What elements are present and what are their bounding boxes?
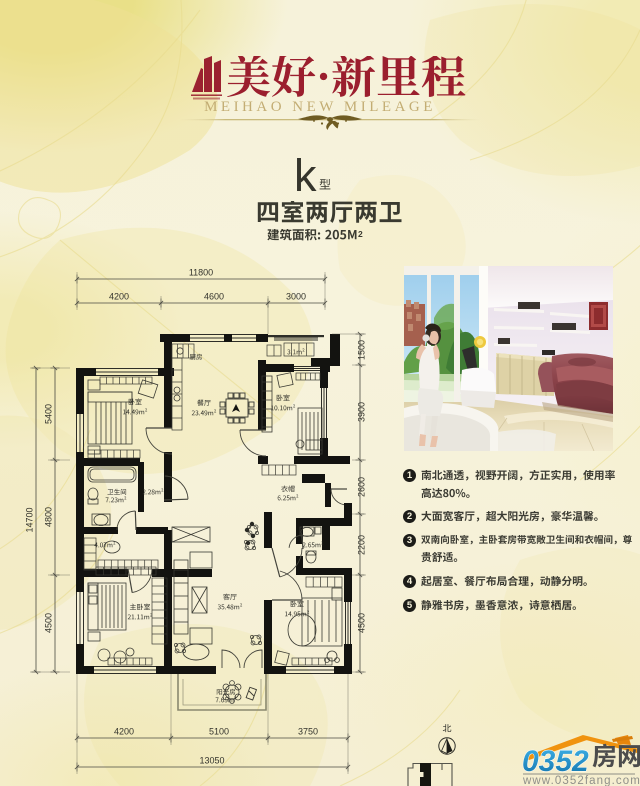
svg-text:3750: 3750 [298, 727, 318, 737]
svg-text:2200: 2200 [357, 535, 367, 555]
svg-text:11800: 11800 [189, 268, 213, 278]
svg-text:4600: 4600 [204, 292, 224, 302]
svg-text:1500: 1500 [357, 340, 367, 360]
svg-text:0352: 0352 [522, 745, 589, 778]
svg-text:13050: 13050 [199, 756, 224, 766]
svg-text:14700: 14700 [25, 507, 35, 532]
svg-text:3000: 3000 [286, 292, 306, 302]
svg-text:5400: 5400 [44, 404, 54, 424]
svg-text:2600: 2600 [357, 477, 367, 497]
svg-text:3900: 3900 [357, 402, 367, 422]
svg-text:4200: 4200 [114, 727, 134, 737]
svg-text:4500: 4500 [357, 613, 367, 633]
svg-text:5100: 5100 [209, 727, 229, 737]
svg-text:4200: 4200 [109, 292, 129, 302]
svg-text:www.0352fang.com: www.0352fang.com [522, 775, 640, 786]
svg-text:4800: 4800 [44, 507, 54, 527]
svg-text:4500: 4500 [44, 613, 54, 633]
